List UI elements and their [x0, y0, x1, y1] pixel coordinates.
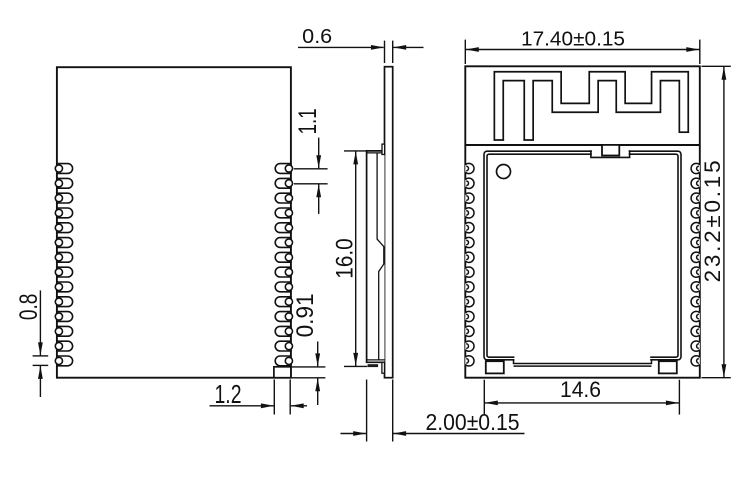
svg-text:0.6: 0.6: [302, 25, 332, 48]
svg-text:16.0: 16.0: [332, 238, 359, 279]
svg-text:23.2±0.15: 23.2±0.15: [700, 160, 725, 282]
svg-text:0.91: 0.91: [292, 293, 319, 337]
svg-text:2.00±0.15: 2.00±0.15: [426, 409, 520, 435]
svg-text:14.6: 14.6: [560, 377, 601, 402]
svg-text:0.8: 0.8: [15, 294, 43, 321]
svg-text:17.40±0.15: 17.40±0.15: [521, 28, 625, 51]
svg-text:1.1: 1.1: [294, 108, 322, 134]
svg-text:1.2: 1.2: [215, 381, 242, 409]
